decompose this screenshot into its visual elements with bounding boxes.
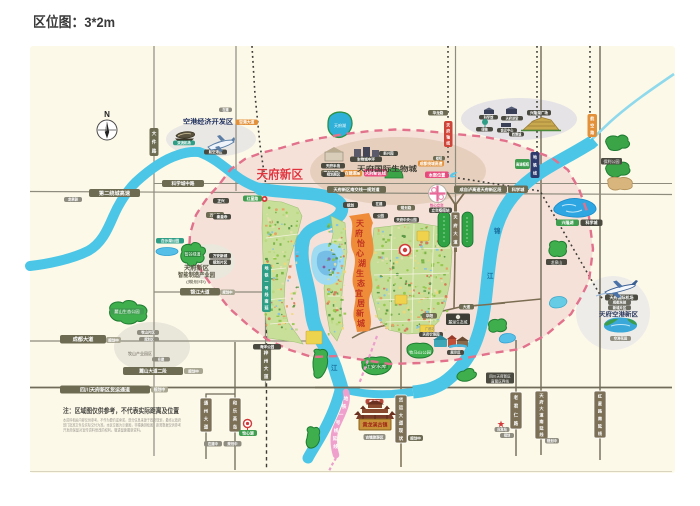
svg-text:线: 线 xyxy=(446,140,450,145)
svg-text:大: 大 xyxy=(152,130,157,137)
svg-text:空: 空 xyxy=(590,122,594,128)
svg-text:件: 件 xyxy=(152,139,157,146)
svg-text:规划中: 规划中 xyxy=(188,368,199,373)
svg-text:梓: 梓 xyxy=(264,350,269,357)
svg-text:直管区界线: 直管区界线 xyxy=(491,378,509,383)
svg-text:应急站: 应急站 xyxy=(497,427,507,432)
svg-text:湖: 湖 xyxy=(358,258,366,268)
svg-text:运: 运 xyxy=(399,404,404,411)
svg-text:道: 道 xyxy=(264,373,269,380)
svg-text:天府新区南交线一规划道: 天府新区南交线一规划道 xyxy=(333,186,380,193)
svg-text:空港花田: 空港花田 xyxy=(614,336,628,341)
svg-text:道: 道 xyxy=(399,419,404,426)
svg-text:地: 地 xyxy=(344,395,349,402)
svg-text:新兴园: 新兴园 xyxy=(383,151,394,156)
svg-text:大: 大 xyxy=(204,416,209,423)
svg-text:英: 英 xyxy=(233,416,238,423)
svg-text:岛: 岛 xyxy=(233,424,238,431)
svg-text:在建: 在建 xyxy=(376,201,383,206)
svg-text:展示区: 展示区 xyxy=(449,350,461,355)
svg-text:天府中央公园: 天府中央公园 xyxy=(396,217,417,222)
svg-text:府: 府 xyxy=(446,128,450,133)
svg-text:状: 状 xyxy=(399,435,404,442)
svg-text:道: 道 xyxy=(204,424,209,431)
svg-text:科学城: 科学城 xyxy=(512,186,525,193)
svg-text:红星路: 红星路 xyxy=(247,196,259,201)
svg-text:大: 大 xyxy=(264,365,269,372)
svg-text:天: 天 xyxy=(446,122,450,127)
svg-text:成自泸高速天府新区段: 成自泸高速天府新区段 xyxy=(460,186,503,193)
svg-text:乐: 乐 xyxy=(233,408,238,415)
svg-text:锦: 锦 xyxy=(494,226,501,235)
svg-text:智能制造产业园: 智能制造产业园 xyxy=(178,271,215,279)
svg-text:货: 货 xyxy=(399,396,404,403)
svg-text:怡心立交: 怡心立交 xyxy=(430,203,444,208)
svg-text:延: 延 xyxy=(597,422,603,429)
svg-text:成都东部: 成都东部 xyxy=(613,300,627,305)
svg-text:和: 和 xyxy=(233,400,238,407)
svg-text:科学馆: 科学馆 xyxy=(483,114,494,119)
svg-text:古镇旅游区: 古镇旅游区 xyxy=(366,434,384,439)
svg-text:规划中: 规划中 xyxy=(108,337,119,342)
svg-text:天府新区: 天府新区 xyxy=(257,167,304,182)
svg-text:城: 城 xyxy=(357,318,365,328)
svg-text:规划展区: 规划展区 xyxy=(326,172,341,177)
svg-text:保利公园: 保利公园 xyxy=(604,158,620,164)
svg-text:铁: 铁 xyxy=(533,161,537,167)
svg-text:延: 延 xyxy=(332,435,338,442)
svg-text:兴隆湖广场: 兴隆湖广场 xyxy=(530,110,548,115)
svg-text:天府国际机场: 天府国际机场 xyxy=(610,294,634,300)
svg-text:(规划中): (规划中) xyxy=(186,279,207,284)
svg-text:本案位置: 本案位置 xyxy=(428,171,447,178)
svg-text:黄龙溪古镇: 黄龙溪古镇 xyxy=(362,422,387,429)
svg-text:海洋公园: 海洋公园 xyxy=(260,344,275,349)
svg-text:注：区域图仅供参考，不代表实际距离及位置: 注：区域图仅供参考，不代表实际距离及位置 xyxy=(63,406,179,415)
svg-text:线: 线 xyxy=(265,291,269,297)
svg-text:开发商保留对宣传资料修改的权利。敬请留意最新资料。: 开发商保留对宣传资料修改的权利。敬请留意最新资料。 xyxy=(63,427,143,433)
svg-text:四川天府新区货运通道: 四川天府新区货运通道 xyxy=(80,386,130,393)
svg-text:空港大道: 空港大道 xyxy=(239,120,254,125)
svg-text:宜: 宜 xyxy=(355,288,363,298)
svg-text:大道: 大道 xyxy=(463,304,471,309)
svg-text:南: 南 xyxy=(265,298,269,304)
svg-text:路: 路 xyxy=(514,420,519,427)
svg-text:江: 江 xyxy=(331,363,338,372)
svg-text:天府空港新区: 天府空港新区 xyxy=(599,311,638,319)
svg-text:空港经济开发区: 空港经济开发区 xyxy=(183,117,234,126)
svg-text:地: 地 xyxy=(265,265,269,271)
svg-text:规划中: 规划中 xyxy=(221,289,233,294)
svg-text:现: 现 xyxy=(399,427,404,434)
svg-text:路: 路 xyxy=(590,129,594,135)
svg-text:规划: 规划 xyxy=(504,433,510,438)
svg-text:路: 路 xyxy=(152,147,157,154)
svg-text:规划: 规划 xyxy=(347,202,355,207)
svg-text:天府讲堂: 天府讲堂 xyxy=(506,115,520,120)
svg-text:牧马山公园: 牧马山公园 xyxy=(409,350,431,355)
svg-text:双流机场: 双流机场 xyxy=(176,140,191,145)
svg-text:成都大道: 成都大道 xyxy=(73,335,95,343)
svg-text:天府湖: 天府湖 xyxy=(334,122,346,128)
svg-text:牧山片区: 牧山片区 xyxy=(141,330,155,335)
svg-text:万安新城: 万安新城 xyxy=(212,253,228,258)
svg-text:牧山产业园区: 牧山产业园区 xyxy=(128,350,152,357)
svg-text:科学城中路: 科学城中路 xyxy=(172,180,195,187)
svg-text:江安水库: 江安水库 xyxy=(366,364,387,369)
svg-text:华龙路: 华龙路 xyxy=(433,110,444,115)
svg-text:规划中: 规划中 xyxy=(153,387,166,392)
svg-text:君: 君 xyxy=(514,403,519,410)
svg-text:在建中: 在建中 xyxy=(208,441,219,446)
svg-text:一: 一 xyxy=(265,279,269,284)
svg-text:星: 星 xyxy=(598,400,602,407)
svg-text:态: 态 xyxy=(357,278,365,288)
svg-text:延: 延 xyxy=(538,425,544,432)
svg-text:立交枢纽站: 立交枢纽站 xyxy=(432,208,450,213)
svg-text:区位图：3*2m: 区位图：3*2m xyxy=(33,14,115,30)
svg-text:居: 居 xyxy=(357,299,365,308)
svg-text:规划路: 规划路 xyxy=(401,205,412,210)
svg-text:号: 号 xyxy=(265,284,269,290)
svg-text:线: 线 xyxy=(334,427,339,434)
svg-text:N: N xyxy=(104,110,110,119)
svg-text:智谷绿道: 智谷绿道 xyxy=(185,251,201,257)
svg-text:锦江大道: 锦江大道 xyxy=(190,288,209,295)
svg-text:新城片区: 新城片区 xyxy=(613,305,627,310)
svg-text:华阳: 华阳 xyxy=(426,313,434,318)
svg-text:兴隆湖: 兴隆湖 xyxy=(562,219,574,225)
svg-text:高速枢纽: 高速枢纽 xyxy=(516,161,529,166)
svg-text:龙泉驿: 龙泉驿 xyxy=(67,197,79,202)
svg-text:西博城: 西博城 xyxy=(512,131,522,136)
svg-text:线: 线 xyxy=(333,443,338,450)
svg-text:新: 新 xyxy=(356,308,364,318)
svg-text:在建: 在建 xyxy=(158,356,165,361)
svg-text:四川天府新区: 四川天府新区 xyxy=(489,374,511,379)
svg-text:麓山大道二段: 麓山大道二段 xyxy=(139,368,167,375)
svg-text:天: 天 xyxy=(356,219,365,228)
svg-text:大: 大 xyxy=(399,412,404,419)
svg-text:天府国际生物城: 天府国际生物城 xyxy=(357,164,417,173)
svg-text:江: 江 xyxy=(487,271,494,280)
svg-text:生物城中环: 生物城中环 xyxy=(357,157,375,162)
svg-text:麓湖生态城: 麓湖生态城 xyxy=(449,320,468,325)
svg-text:白沙湖公园: 白沙湖公园 xyxy=(161,238,179,243)
svg-text:仁: 仁 xyxy=(514,412,519,419)
svg-text:铁: 铁 xyxy=(342,403,347,410)
svg-text:怡: 怡 xyxy=(357,238,365,248)
svg-text:线: 线 xyxy=(533,169,537,175)
svg-text:府: 府 xyxy=(355,228,363,238)
svg-text:公园: 公园 xyxy=(377,213,384,218)
svg-text:在建中: 在建中 xyxy=(426,331,436,336)
svg-text:在建: 在建 xyxy=(222,107,229,112)
svg-text:规划区: 规划区 xyxy=(144,336,154,341)
svg-text:绿轴: 绿轴 xyxy=(481,126,488,131)
svg-text:生: 生 xyxy=(356,268,364,278)
svg-text:第二绕城高速: 第二绕城高速 xyxy=(99,189,131,197)
svg-text:科学城: 科学城 xyxy=(586,219,598,225)
svg-text:麓山生态公园: 麓山生态公园 xyxy=(114,308,139,315)
svg-text:地: 地 xyxy=(533,153,537,159)
svg-text:正兴: 正兴 xyxy=(217,198,225,203)
svg-text:老: 老 xyxy=(514,394,519,401)
svg-text:天府半岛: 天府半岛 xyxy=(326,163,341,168)
svg-text:航: 航 xyxy=(589,115,594,121)
svg-text:规划中: 规划中 xyxy=(410,435,421,440)
svg-text:怡心湖: 怡心湖 xyxy=(242,430,254,435)
svg-text:规划中: 规划中 xyxy=(226,441,238,446)
svg-text:轴: 轴 xyxy=(446,134,450,139)
svg-text:龙泉山: 龙泉山 xyxy=(551,260,563,265)
svg-text:号: 号 xyxy=(336,419,341,426)
svg-text:天府新区: 天府新区 xyxy=(184,264,209,272)
svg-text:心: 心 xyxy=(356,248,364,258)
svg-text:枢纽: 枢纽 xyxy=(436,155,443,160)
svg-text:广都站: 广都站 xyxy=(425,326,435,331)
svg-text:成都绕城高速: 成都绕城高速 xyxy=(420,161,443,166)
svg-text:规划中: 规划中 xyxy=(546,438,558,443)
svg-text:秦皇寺: 秦皇寺 xyxy=(217,214,228,219)
svg-text:通: 通 xyxy=(204,400,209,407)
svg-text:铁: 铁 xyxy=(265,271,269,277)
svg-text:一: 一 xyxy=(339,412,344,417)
svg-text:规划片区: 规划片区 xyxy=(213,260,228,265)
